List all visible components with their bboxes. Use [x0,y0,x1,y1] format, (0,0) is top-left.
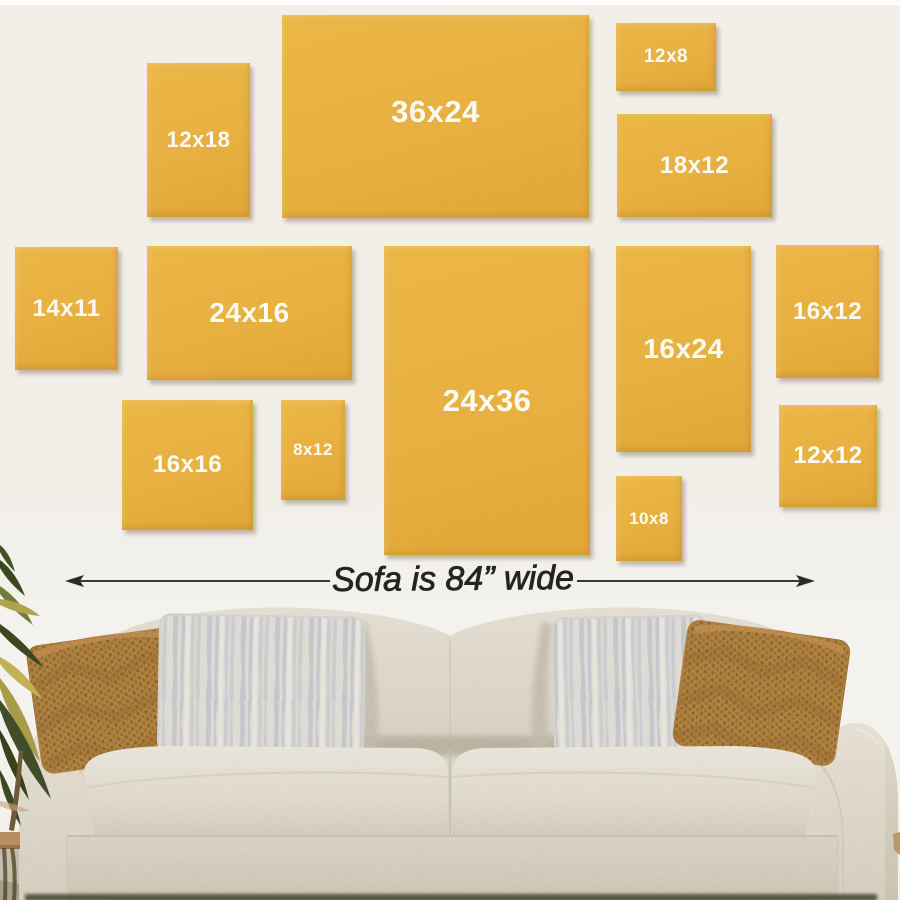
svg-text:Sofa is 84” wide: Sofa is 84” wide [332,559,574,599]
